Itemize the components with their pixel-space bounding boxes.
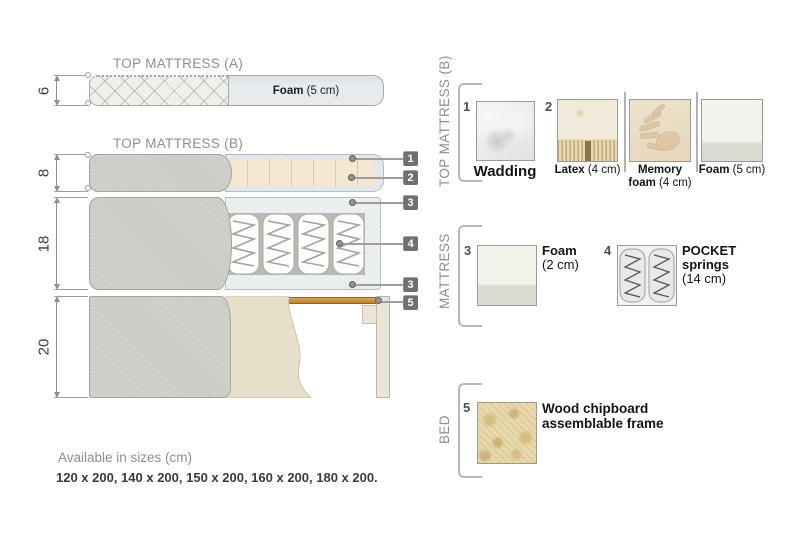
legend-item-number: 5 xyxy=(463,400,470,415)
dimension-value: 8 xyxy=(36,169,53,177)
top-mattress-b-fabric-cover xyxy=(89,154,232,192)
dimension-value: 20 xyxy=(36,339,53,356)
chipboard-label: Wood chipboard assemblable frame xyxy=(542,401,664,431)
latex-swatch xyxy=(557,99,618,162)
callout-badge-3: 3 xyxy=(403,195,418,210)
dimension-arrow xyxy=(56,77,57,104)
foam-5cm-label: Foam (5 cm) xyxy=(690,164,774,176)
legend-section-top-mattress-b: TOP MATTRESS (B) xyxy=(437,55,452,187)
foam-layer-size: (5 cm) xyxy=(303,85,339,97)
available-sizes-list: 120 x 200, 140 x 200, 150 x 200, 160 x 2… xyxy=(56,470,378,485)
callout-badge-5: 5 xyxy=(403,295,418,310)
corner-button xyxy=(85,100,91,106)
legend-divider xyxy=(624,92,626,172)
dimension-arrow xyxy=(56,199,57,288)
bed-side-rail xyxy=(376,296,390,398)
foam-layer-label: Foam xyxy=(273,85,304,97)
legend-divider xyxy=(696,92,698,172)
callout-line-3b xyxy=(352,284,403,286)
dimension-arrow xyxy=(56,156,57,190)
top-mattress-b-latex-cells xyxy=(226,160,375,186)
top-mattress-b-title: TOP MATTRESS (B) xyxy=(113,136,243,151)
callout-line-4 xyxy=(339,243,403,245)
legend-item-number: 4 xyxy=(604,243,611,258)
corner-button xyxy=(85,185,91,191)
callout-badge-4: 4 xyxy=(403,236,418,251)
bed-chipboard-drape xyxy=(225,296,313,398)
latex-notch xyxy=(585,141,591,161)
dimension-bed: 20 xyxy=(38,296,88,398)
mattress-fabric-cover xyxy=(89,197,232,290)
legend-item-number: 2 xyxy=(545,99,552,114)
callout-dot-2 xyxy=(348,174,355,181)
dimension-mattress: 18 xyxy=(38,197,88,290)
callout-line-2 xyxy=(351,177,403,179)
foam-2cm-swatch xyxy=(477,245,537,306)
callout-line-3 xyxy=(352,202,403,204)
available-sizes-heading: Available in sizes (cm) xyxy=(58,450,192,465)
wadding-label: Wadding xyxy=(455,163,555,180)
dimension-top-mattress-a: 6 xyxy=(38,75,88,106)
corner-button xyxy=(85,72,91,78)
callout-dot-3 xyxy=(349,199,356,206)
foam-5cm-swatch xyxy=(701,99,763,162)
pocket-springs-label: POCKET springs (14 cm) xyxy=(682,244,736,286)
pocket-springs-swatch xyxy=(617,245,677,306)
memory-foam-swatch xyxy=(629,99,691,162)
foam-2cm-label: Foam (2 cm) xyxy=(542,244,579,272)
callout-badge-3b: 3 xyxy=(403,277,418,292)
chipboard-swatch xyxy=(477,402,537,464)
hand-imprint-icon xyxy=(630,100,690,161)
callout-dot-1 xyxy=(349,155,356,162)
callout-line-1 xyxy=(352,158,403,160)
top-mattress-a-title: TOP MATTRESS (A) xyxy=(113,56,243,71)
callout-badge-2: 2 xyxy=(403,170,418,185)
top-mattress-a-foam-layer: Foam (5 cm) xyxy=(228,75,384,106)
bed-corner-bracket xyxy=(362,305,377,324)
callout-dot-4 xyxy=(336,240,343,247)
callout-badge-1: 1 xyxy=(403,151,418,166)
legend-item-number: 1 xyxy=(463,99,470,114)
top-mattress-a-quilted-cover xyxy=(89,75,228,106)
legend-section-mattress: MATTRESS xyxy=(437,233,452,309)
callout-dot-5 xyxy=(375,297,382,304)
pocket-springs-icon xyxy=(618,246,676,305)
dimension-top-mattress-b: 8 xyxy=(38,154,88,192)
callout-dot-3b xyxy=(349,281,356,288)
mattress-construction-infographic: 6 8 18 20 TOP MATTRESS (A) Foam (5 cm) T… xyxy=(0,0,800,533)
wadding-swatch xyxy=(476,101,535,161)
dimension-value: 6 xyxy=(36,86,53,94)
legend-item-number: 3 xyxy=(464,243,471,258)
top-mattress-b-wadding-layer xyxy=(225,154,384,192)
bed-fabric-cover xyxy=(89,296,231,398)
legend-section-bed: BED xyxy=(437,415,452,444)
dimension-arrow xyxy=(56,298,57,396)
corner-button xyxy=(85,152,91,158)
dimension-value: 18 xyxy=(36,235,53,252)
